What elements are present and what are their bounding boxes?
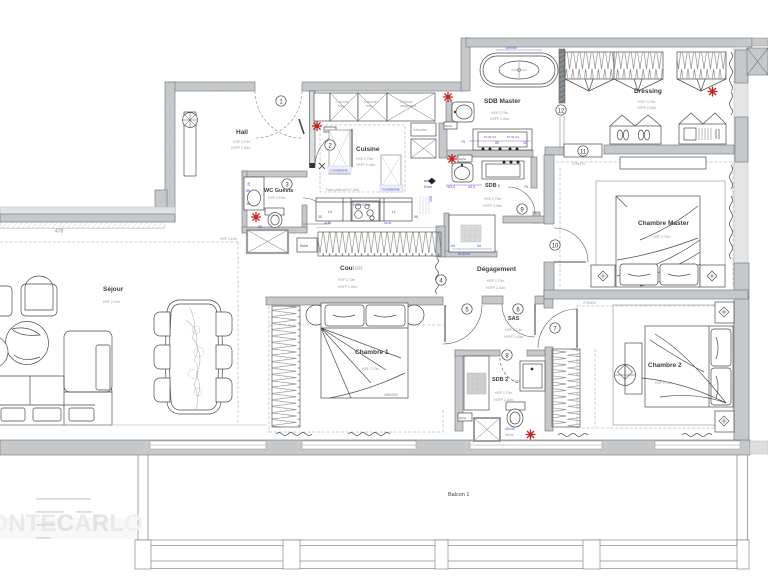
svg-text:Niche: Niche [459, 157, 467, 161]
svg-text:Niche: Niche [505, 433, 514, 437]
svg-text:43-61: 43-61 [324, 221, 332, 225]
svg-text:Chambre Master: Chambre Master [638, 220, 689, 227]
svg-text:Niche: Niche [445, 124, 453, 128]
svg-text:Vaisselier: Vaisselier [413, 128, 428, 132]
svg-text:28: 28 [247, 182, 251, 186]
svg-text:HSFP 2,40m: HSFP 2,40m [490, 117, 510, 121]
svg-text:SDB 2: SDB 2 [492, 377, 508, 383]
svg-text:HSP 2,70m: HSP 2,70m [484, 197, 501, 201]
svg-text:43-61: 43-61 [384, 221, 392, 225]
svg-text:Chambre 1: Chambre 1 [355, 349, 389, 356]
svg-text:frigo: frigo [338, 104, 345, 108]
svg-text:LL: LL [392, 210, 396, 214]
svg-text:HSFP 2,40m: HSFP 2,40m [338, 285, 358, 289]
svg-text:Chambre 2: Chambre 2 [648, 362, 682, 369]
svg-text:HSP 2,70m: HSP 2,70m [495, 391, 512, 395]
svg-text:Hall: Hall [236, 129, 248, 136]
svg-text:HSP 2,70m: HSP 2,70m [487, 279, 504, 283]
svg-text:HSP 2,40m: HSP 2,40m [220, 237, 237, 241]
svg-text:rangement: rangement [400, 104, 416, 108]
svg-text:100: 100 [429, 196, 433, 202]
svg-text:+63,5: +63,5 [446, 185, 455, 189]
svg-text:270x470: 270x470 [572, 162, 585, 166]
svg-text:Dégagement: Dégagement [477, 266, 517, 273]
svg-text:11: 11 [580, 150, 587, 156]
svg-text:478: 478 [55, 229, 64, 235]
svg-text:HSFP 2,40m: HSFP 2,40m [231, 146, 251, 150]
svg-text:HSP 2,70m: HSP 2,70m [103, 300, 120, 304]
svg-text:four: four [366, 104, 373, 108]
svg-text:SDB Master: SDB Master [484, 98, 521, 105]
svg-text:Condamné: Condamné [330, 169, 348, 173]
svg-text:Cuisine: Cuisine [356, 146, 380, 153]
svg-text:90: 90 [523, 141, 527, 145]
svg-text:12: 12 [558, 109, 565, 115]
svg-text:35: 35 [318, 215, 322, 219]
svg-text:Balcon 1: Balcon 1 [448, 492, 469, 498]
svg-text:180x80: 180x80 [505, 46, 517, 50]
svg-text:SAS: SAS [508, 316, 520, 322]
svg-text:85: 85 [246, 189, 250, 193]
svg-text:HSFP 2,40m: HSFP 2,40m [494, 398, 514, 402]
svg-text:270x430: 270x430 [583, 301, 596, 305]
svg-text:98: 98 [414, 215, 418, 219]
svg-text:75: 75 [461, 140, 465, 144]
svg-text:HSP 2,70m: HSP 2,70m [653, 235, 670, 239]
svg-text:HSP 2,70m: HSP 2,70m [356, 157, 373, 161]
svg-text:57-61-61: 57-61-61 [507, 135, 519, 139]
svg-text:Couloir: Couloir [340, 265, 363, 272]
svg-text:Evier: Evier [424, 185, 433, 189]
svg-text:Dressing: Dressing [634, 88, 662, 95]
svg-text:HSP 2,70m: HSP 2,70m [655, 381, 672, 385]
svg-text:35: 35 [258, 225, 262, 229]
svg-text:HSFP 2,40m: HSFP 2,40m [486, 286, 506, 290]
svg-text:50: 50 [495, 141, 499, 145]
svg-text:38: 38 [246, 202, 250, 206]
svg-text:57-61-61: 57-61-61 [484, 135, 496, 139]
svg-text:HSFP 2,40m: HSFP 2,40m [637, 106, 657, 110]
svg-text:HSP 2,70m: HSP 2,70m [505, 328, 522, 332]
svg-text:Evier+Cuis: Evier+Cuis [353, 203, 371, 207]
svg-text:HSP 2,70m: HSP 2,70m [491, 111, 508, 115]
svg-text:LV: LV [328, 210, 333, 214]
svg-text:Niche: Niche [300, 244, 308, 248]
svg-text:HSP 2,70m: HSP 2,70m [233, 140, 250, 144]
svg-text:MONTECARLO: MONTECARLO [0, 510, 143, 537]
svg-text:40x40: 40x40 [505, 427, 515, 431]
svg-text:10: 10 [552, 244, 559, 250]
svg-text:HSFP 2,40m: HSFP 2,40m [504, 335, 524, 339]
svg-text:80-90-80: 80-90-80 [458, 252, 470, 256]
svg-text:HSP 2,70m: HSP 2,70m [362, 367, 379, 371]
svg-text:75: 75 [524, 185, 528, 189]
svg-text:HSP 2,40m: HSP 2,40m [268, 196, 285, 200]
svg-text:Niche: Niche [459, 416, 467, 420]
svg-text:54: 54 [451, 244, 455, 248]
svg-text:54: 54 [477, 244, 481, 248]
svg-text:Faux plafond H:2,40m: Faux plafond H:2,40m [326, 188, 360, 192]
svg-text:HSFP 2,40m: HSFP 2,40m [356, 163, 376, 167]
svg-text:Condamné: Condamné [382, 188, 400, 192]
svg-text:160x200: 160x200 [384, 393, 398, 397]
svg-text:HSP 2,70m: HSP 2,70m [338, 278, 355, 282]
svg-text:43,5: 43,5 [468, 185, 475, 189]
svg-text:HSP 2,70m: HSP 2,70m [638, 100, 655, 104]
svg-text:HSFP 2,40m: HSFP 2,40m [483, 204, 503, 208]
svg-text:Séjour: Séjour [103, 286, 124, 293]
